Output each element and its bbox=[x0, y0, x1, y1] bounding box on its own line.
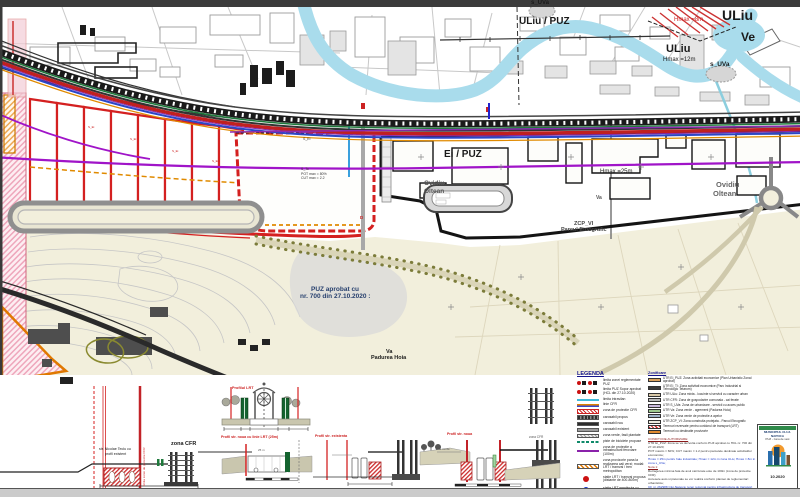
legend-symbol-band-redhatch bbox=[577, 409, 601, 414]
legend-item-label: statie LRT / tramvai propusa (distante d… bbox=[603, 476, 646, 484]
legend-item: limita intravilan bbox=[577, 398, 646, 402]
zoning-item: Terenuri cu destinatie provizorie bbox=[648, 430, 756, 434]
legend-item-label: carosabil propus bbox=[603, 416, 628, 420]
zoning-item-label: Terenuri cu destinatie provizorie bbox=[663, 430, 708, 434]
profile-2 bbox=[222, 383, 310, 432]
legend-symbol-box-grayhatch bbox=[577, 434, 601, 439]
zoning-item-label: UTR Ei_TI: Zona activitati economice (Pa… bbox=[663, 385, 756, 392]
legend-item-label: limita PUZ Sopor aprobat (HCL din 27.10.… bbox=[603, 388, 646, 396]
zoning-legend-panel: Zonificare UTR Ei_PUZ: Zona activitati e… bbox=[648, 371, 756, 497]
legend-item-label: limita intravilan bbox=[603, 398, 625, 402]
legend-item-label: zona provizorie pana la realizarea caii … bbox=[603, 459, 646, 474]
legend-item: zona verde, fasii plantate bbox=[577, 434, 646, 439]
legend-symbol-line-cyan bbox=[577, 399, 601, 401]
zoning-item: UTR S_UVa: Zona de urbanizare - servicii… bbox=[648, 404, 756, 408]
zoning-item-label: Terenuri rezervate pentru coridorul de t… bbox=[663, 425, 739, 429]
profile-4 bbox=[313, 440, 420, 486]
map-drawing bbox=[0, 7, 800, 375]
legend-items: limita zonei reglementate PUZlimita PUZ … bbox=[577, 379, 646, 497]
zoning-swatch bbox=[648, 430, 661, 434]
legend-note-line: Accesele auto si pietonale se vor realiz… bbox=[648, 477, 756, 485]
zoning-swatch bbox=[648, 378, 661, 382]
legend-item: limita PUZ Sopor aprobat (HCL din 27.10.… bbox=[577, 388, 646, 396]
zoning-swatch bbox=[648, 409, 661, 413]
cross-sections-strip bbox=[0, 375, 575, 489]
profile-3 bbox=[222, 440, 312, 483]
legend-note-line: UTR Ei_PUZ: Zona se va dezvolta conform … bbox=[648, 441, 756, 449]
legend-symbol-line-greendash bbox=[577, 441, 601, 443]
zoning-swatch bbox=[648, 425, 661, 429]
zoning-title: Zonificare bbox=[648, 371, 756, 375]
loop-road bbox=[10, 203, 262, 231]
legend-item-label: piste de biciclete propuse bbox=[603, 440, 641, 444]
zoning-item: UTR Ei_TI: Zona activitati economice (Pa… bbox=[648, 385, 756, 392]
profile-5 bbox=[420, 388, 560, 488]
zoning-item: UTR ULiu: Zona mixta - locuinte si servi… bbox=[648, 393, 756, 397]
legend-title: LEGENDA bbox=[577, 371, 646, 377]
zoning-item: UTR Va: Zona verde - agrement (Padurea H… bbox=[648, 409, 756, 413]
legend-item-label: linie CFR bbox=[603, 403, 617, 407]
legend-item: statie LRT / tramvai propusa (distante d… bbox=[577, 476, 646, 484]
zoning-swatch bbox=[648, 414, 661, 418]
title-block-date: 10.2020 bbox=[758, 474, 797, 479]
zoning-item: UTR Ve: Zona verde de protectie a apelor bbox=[648, 414, 756, 418]
legend-item: linie CFR bbox=[577, 403, 646, 407]
title-block: MUNICIPIUL CLUJ-NAPOCA PUZ - zona de ves… bbox=[757, 424, 798, 490]
zoning-item-label: UTR CFR: Zona de gospodarire comunala - … bbox=[663, 399, 739, 403]
legend-item-label: limita zonei reglementate PUZ bbox=[603, 379, 646, 387]
zoning-item-label: UTR ZCP_VI: Zona construita protejata - … bbox=[663, 420, 746, 424]
legend-symbol-box-black bbox=[577, 422, 601, 427]
legend-note-line: Retragerea minima fata de axul caii fera… bbox=[648, 469, 756, 477]
legend-symbol-dots bbox=[577, 390, 601, 394]
legend-symbol-box-darkhatch bbox=[577, 415, 601, 420]
suva-circle bbox=[706, 66, 736, 82]
legend-item-label: zona de protectie CFR bbox=[603, 409, 637, 413]
plan-sheet: LEGENDA limita zonei reglementate PUZlim… bbox=[0, 0, 800, 497]
legend-note-line: POT maxim = 60%; CUT maxim = 1.2 pentru … bbox=[648, 449, 756, 457]
zoning-items: UTR Ei_PUZ: Zona activitati economice (P… bbox=[648, 377, 756, 435]
legend-item: carosabil propus bbox=[577, 415, 646, 420]
legend-symbol-dot-red bbox=[577, 476, 601, 482]
zoning-item-label: UTR Ei_PUZ: Zona activitati economice (P… bbox=[663, 377, 756, 384]
zoning-item: UTR ZCP_VI: Zona construita protejata - … bbox=[648, 420, 756, 424]
legend-symbol-line-purple bbox=[577, 450, 601, 452]
legend-item: zona de protectie CFR bbox=[577, 409, 646, 414]
station-structure bbox=[424, 185, 512, 212]
legend-item-label: carosabil nou bbox=[603, 422, 623, 426]
legend-item-label: carosabil existent bbox=[603, 428, 629, 432]
legend-item: zona provizorie pana la realizarea caii … bbox=[577, 459, 646, 474]
legend-item: carosabil existent bbox=[577, 428, 646, 433]
zoning-swatch bbox=[648, 404, 661, 408]
zoning-item-label: UTR ULiu: Zona mixta - locuinte si servi… bbox=[663, 393, 748, 397]
zoning-item: Terenuri rezervate pentru coridorul de t… bbox=[648, 425, 756, 429]
zoning-swatch bbox=[648, 420, 661, 424]
site-plan-map bbox=[0, 7, 800, 375]
zoning-item: UTR CFR: Zona de gospodarire comunala - … bbox=[648, 398, 756, 402]
legend-item-label: zona de protectie a infrastructurii fero… bbox=[603, 446, 646, 457]
zoning-item-label: UTR Va: Zona verde - agrement (Padurea H… bbox=[663, 409, 731, 413]
legend-symbol-box-gray bbox=[577, 428, 601, 433]
cross-sections-drawing bbox=[0, 375, 575, 489]
zoning-item: UTR Ei_PUZ: Zona activitati economice (P… bbox=[648, 377, 756, 384]
orange-strip bbox=[4, 95, 15, 153]
legend-note-line: Hmax = 25m pentru hale industriale; Hmax… bbox=[648, 457, 756, 465]
zoning-swatch bbox=[648, 398, 661, 402]
legend-symbol-box-orangehatch bbox=[577, 464, 601, 469]
legend-symbol-dots bbox=[577, 381, 601, 385]
legend-panel: LEGENDA limita zonei reglementate PUZlim… bbox=[577, 371, 646, 497]
window-top-bar bbox=[0, 0, 800, 7]
profile-1 bbox=[0, 386, 252, 488]
zoning-item-label: UTR S_UVa: Zona de urbanizare - servicii… bbox=[663, 404, 745, 408]
legend-item: piste de biciclete propuse bbox=[577, 440, 646, 444]
legend-item: carosabil nou bbox=[577, 422, 646, 427]
city-logo bbox=[763, 442, 793, 468]
sheet-bottom-margin bbox=[0, 488, 800, 497]
zoning-item-label: UTR Ve: Zona verde de protectie a apelor bbox=[663, 415, 722, 419]
legend-item-label: zona verde, fasii plantate bbox=[603, 434, 641, 438]
zoning-swatch bbox=[648, 393, 661, 397]
zoning-swatch bbox=[648, 386, 661, 390]
legend-symbol-line-multi bbox=[577, 404, 601, 407]
legend-item: zona de protectie a infrastructurii fero… bbox=[577, 446, 646, 457]
legend-item: limita zonei reglementate PUZ bbox=[577, 379, 646, 387]
